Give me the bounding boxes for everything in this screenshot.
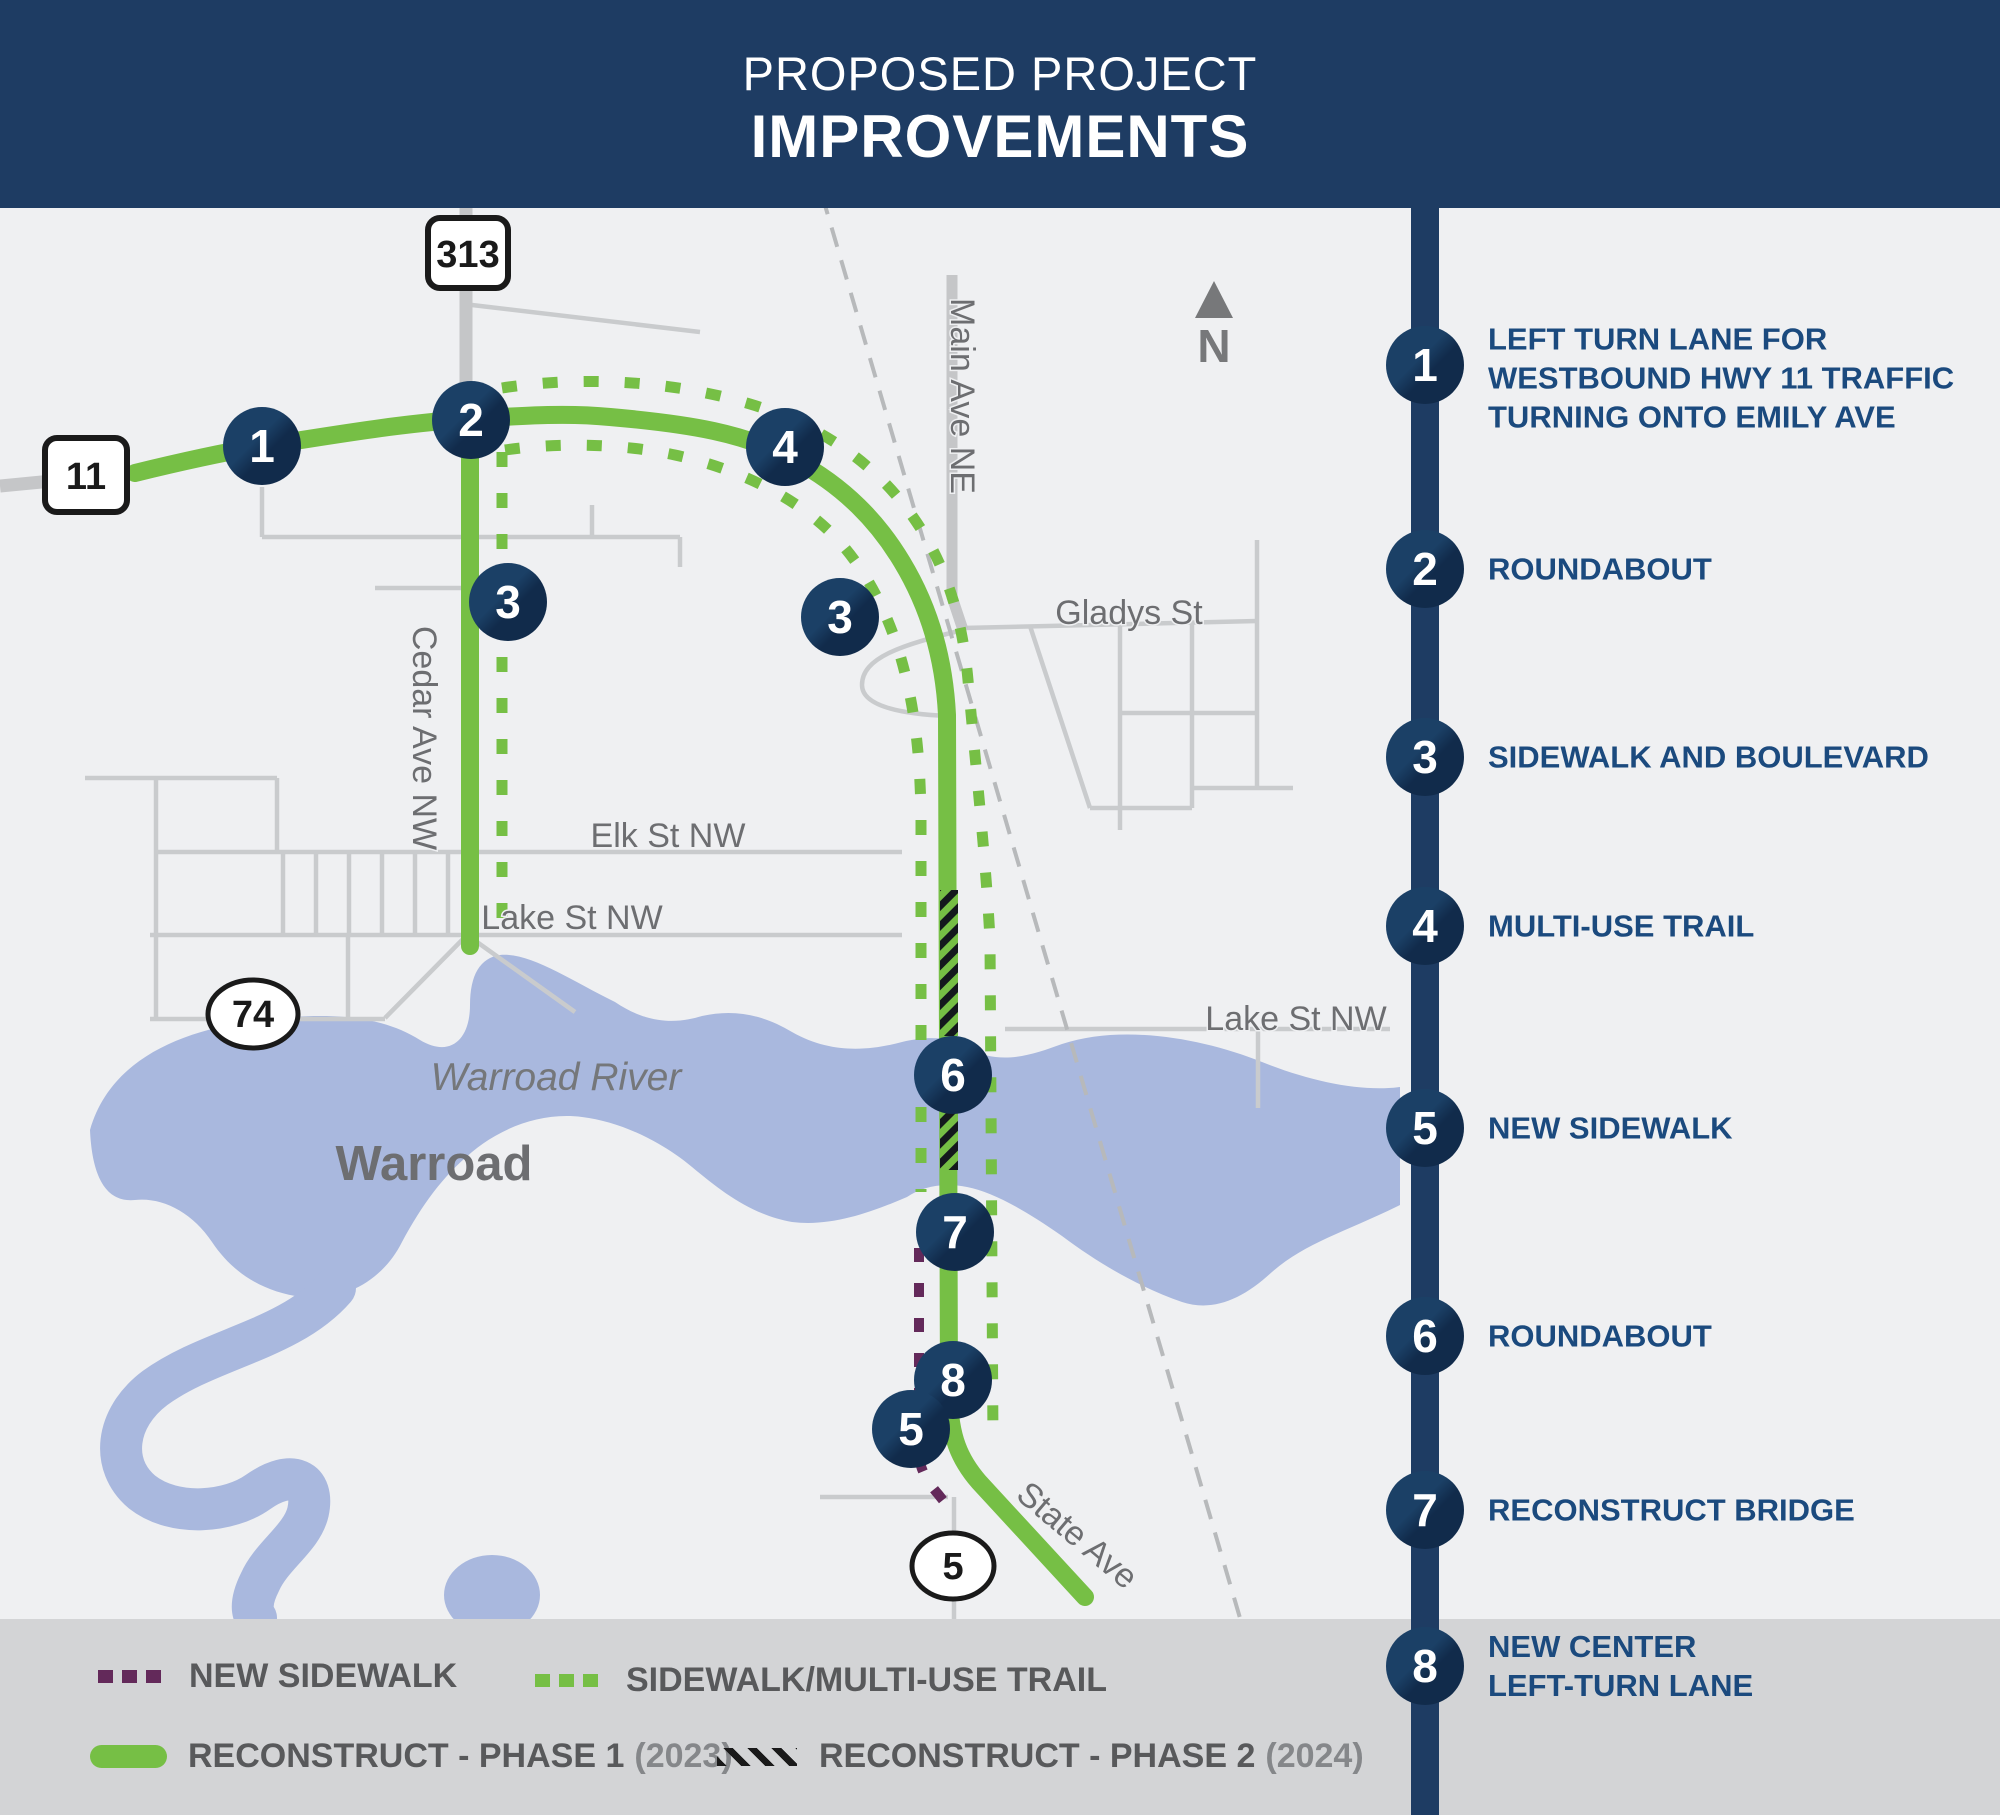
svg-text:6: 6: [940, 1049, 966, 1101]
svg-text:2: 2: [458, 394, 484, 446]
sidebar-item-6-line1: ROUNDABOUT: [1488, 1317, 1958, 1356]
green-dashed-swatch: [535, 1674, 598, 1687]
sidebar-item-1-line2: WESTBOUND HWY 11 TRAFFIC: [1488, 359, 1958, 398]
sidebar-timeline-bar: [1411, 205, 1439, 1815]
sidebar-item-4: MULTI-USE TRAIL: [1488, 907, 1958, 946]
svg-text:N: N: [1197, 320, 1230, 372]
svg-text:3: 3: [495, 576, 521, 628]
svg-text:313: 313: [436, 234, 499, 276]
sidebar-item-3-line1: SIDEWALK AND BOULEVARD: [1488, 738, 1958, 777]
svg-text:7: 7: [942, 1206, 968, 1258]
gladys-st-label: Gladys St: [1055, 594, 1203, 632]
lake-st-west-label: Lake St NW: [481, 899, 662, 937]
sidebar-item-8-line2: LEFT-TURN LANE: [1488, 1666, 1958, 1705]
hatch-swatch: [717, 1748, 797, 1766]
green-solid-swatch: [90, 1745, 167, 1768]
sidebar-item-8-line1: NEW CENTER: [1488, 1627, 1958, 1666]
warroad-river-water: [90, 955, 1400, 1635]
shield-313: 313: [428, 218, 508, 288]
sidebar-circle-8: 8: [1386, 1627, 1464, 1705]
svg-text:1: 1: [249, 420, 275, 472]
sidebar-circle-4: 4: [1386, 887, 1464, 965]
map-marker-1: 1: [223, 407, 301, 485]
legend-trail-label: SIDEWALK/MULTI-USE TRAIL: [626, 1661, 1107, 1700]
shield-11: 11: [45, 438, 127, 512]
shield-5: 5: [912, 1533, 994, 1599]
header: PROPOSED PROJECT IMPROVEMENTS: [0, 0, 2000, 208]
svg-text:5: 5: [942, 1546, 963, 1588]
shield-74: 74: [208, 980, 298, 1048]
sidebar-item-5-line1: NEW SIDEWALK: [1488, 1109, 1958, 1148]
sidebar-item-6: ROUNDABOUT: [1488, 1317, 1958, 1356]
reconstruct-phase2-hatched: [940, 890, 958, 1170]
legend-phase2-year: (2024): [1265, 1737, 1363, 1776]
map-marker-7: 7: [916, 1193, 994, 1271]
map-marker-3-east: 3: [801, 578, 879, 656]
street-network: [85, 305, 1390, 1619]
main-ave-label: Main Ave NE: [943, 298, 981, 494]
map-marker-6: 6: [914, 1036, 992, 1114]
sidebar-item-7-line1: RECONSTRUCT BRIDGE: [1488, 1491, 1958, 1530]
map-marker-2: 2: [432, 381, 510, 459]
legend-phase1: RECONSTRUCT - PHASE 1 (2023): [90, 1737, 733, 1776]
map-marker-3-west: 3: [469, 563, 547, 641]
header-title-line1: PROPOSED PROJECT: [0, 46, 2000, 101]
map-marker-4: 4: [746, 408, 824, 486]
sidebar-circle-7: 7: [1386, 1471, 1464, 1549]
sidebar-circle-3: 3: [1386, 718, 1464, 796]
header-title-line2: IMPROVEMENTS: [0, 102, 2000, 171]
legend-phase2: RECONSTRUCT - PHASE 2 (2024): [717, 1737, 1364, 1776]
sidebar-item-4-line1: MULTI-USE TRAIL: [1488, 907, 1958, 946]
sidebar-item-5: NEW SIDEWALK: [1488, 1109, 1958, 1148]
legend-trail: SIDEWALK/MULTI-USE TRAIL: [535, 1661, 1107, 1700]
elk-st-label: Elk St NW: [591, 817, 746, 855]
purple-dashed-swatch: [98, 1670, 161, 1683]
warroad-city-label: Warroad: [336, 1137, 533, 1191]
sidebar-item-1: LEFT TURN LANE FOR WESTBOUND HWY 11 TRAF…: [1488, 320, 1958, 437]
svg-text:74: 74: [232, 994, 274, 1036]
legend-phase1-label: RECONSTRUCT - PHASE 1: [188, 1737, 624, 1776]
sidebar-circle-1: 1: [1386, 326, 1464, 404]
warroad-river-label: Warroad River: [431, 1056, 684, 1099]
sidebar-item-7: RECONSTRUCT BRIDGE: [1488, 1491, 1958, 1530]
sidebar-circle-6: 6: [1386, 1297, 1464, 1375]
sidebar-item-1-line1: LEFT TURN LANE FOR: [1488, 320, 1958, 359]
north-arrow: N: [1195, 281, 1233, 372]
cedar-ave-label: Cedar Ave NW: [405, 626, 443, 850]
sidebar-circle-2: 2: [1386, 530, 1464, 608]
map-marker-5: 5: [872, 1390, 950, 1468]
sidebar-item-2-line1: ROUNDABOUT: [1488, 550, 1958, 589]
svg-text:4: 4: [772, 421, 798, 473]
svg-text:3: 3: [827, 591, 853, 643]
infographic-canvas: Cedar Ave NW Main Ave NE Gladys St Elk S…: [0, 0, 2000, 1815]
legend-new-sidewalk-label: NEW SIDEWALK: [189, 1657, 457, 1696]
svg-text:8: 8: [940, 1354, 966, 1406]
legend-phase2-label: RECONSTRUCT - PHASE 2: [819, 1737, 1255, 1776]
sidebar-item-3: SIDEWALK AND BOULEVARD: [1488, 738, 1958, 777]
sidebar-circle-5: 5: [1386, 1089, 1464, 1167]
svg-text:11: 11: [66, 456, 106, 498]
svg-text:5: 5: [898, 1403, 924, 1455]
sidebar-item-2: ROUNDABOUT: [1488, 550, 1958, 589]
lake-st-east-label: Lake St NW: [1205, 1000, 1386, 1038]
sidebar-item-8: NEW CENTER LEFT-TURN LANE: [1488, 1627, 1958, 1705]
legend-new-sidewalk: NEW SIDEWALK: [98, 1657, 457, 1696]
sidebar-item-1-line3: TURNING ONTO EMILY AVE: [1488, 398, 1958, 437]
